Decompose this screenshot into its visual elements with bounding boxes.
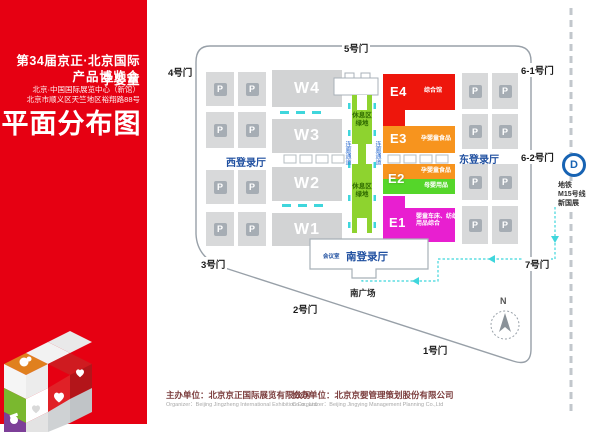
subway-station-label: 地铁 M15号线 新国展	[557, 181, 587, 208]
gate-4-label: 4号门	[166, 65, 194, 79]
gate-3-label: 3号门	[199, 257, 227, 271]
event-banner: 第34届京正·北京国际孕婴童 产品博览会 北京·中国国际展览中心（新馆） 北京市…	[0, 0, 147, 424]
north-connector-building	[334, 73, 378, 95]
strip-notch	[352, 144, 358, 164]
west-registration-hall-label: 西登录厅	[226, 154, 266, 169]
gate-6-2-label: 6-2号门	[519, 150, 556, 164]
gate-1-label: 1号门	[421, 343, 449, 357]
meeting-room-label: 会议室	[323, 252, 340, 260]
event-title-line2: 产品博览会	[6, 66, 140, 85]
compass	[491, 311, 519, 339]
cube-logo	[0, 326, 126, 432]
east-registration-hall-label: 东登录厅	[459, 151, 499, 166]
strip-notch	[357, 95, 367, 110]
map-title: 平面分布图	[0, 102, 143, 141]
gate-2-label: 2号门	[291, 302, 319, 316]
strip-notch	[357, 218, 367, 233]
rest-area-label: 休息区绿地	[352, 112, 372, 127]
gate-5-label: 5号门	[342, 41, 370, 55]
corridor-label-right: 连廊通道	[374, 141, 380, 165]
compass-arrow	[499, 313, 511, 332]
strip-notch	[366, 144, 372, 164]
south-registration-hall-label: 南登录厅	[346, 249, 388, 264]
rest-area-label: 休息区绿地	[352, 183, 372, 198]
gate-7-label: 7号门	[523, 257, 551, 271]
gate-6-1-label: 6-1号门	[519, 63, 556, 77]
subway-logo-icon: D	[562, 153, 586, 177]
corridor-label-left: 连廊通道	[344, 141, 350, 165]
